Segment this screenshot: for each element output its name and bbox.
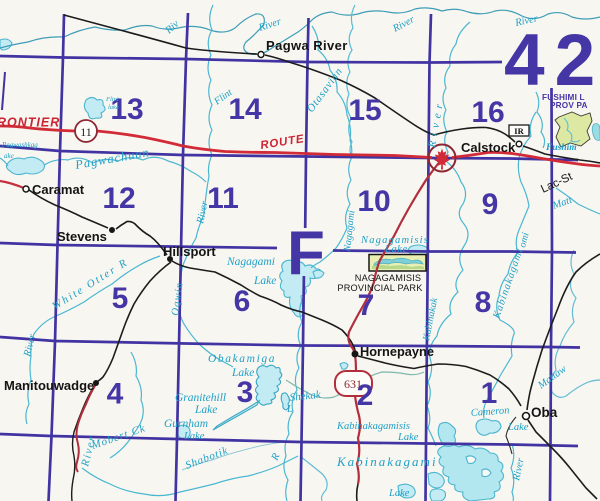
- svg-text:1: 1: [481, 377, 498, 410]
- svg-text:9: 9: [482, 188, 499, 221]
- svg-text:10: 10: [357, 185, 390, 218]
- svg-text:Gurnham: Gurnham: [164, 418, 208, 430]
- svg-text:NAGAGAMISIS: NAGAGAMISIS: [355, 273, 422, 283]
- svg-text:PROV PA: PROV PA: [550, 101, 588, 110]
- svg-text:Hornepayne: Hornepayne: [360, 344, 434, 359]
- svg-text:ake: ake: [4, 152, 14, 160]
- svg-text:Lake: Lake: [194, 404, 217, 416]
- svg-text:11: 11: [80, 125, 92, 139]
- svg-text:Caramat: Caramat: [32, 182, 85, 197]
- svg-text:Pagwashkag: Pagwashkag: [1, 141, 38, 149]
- svg-text:L: L: [286, 404, 293, 415]
- svg-text:6: 6: [234, 285, 251, 318]
- svg-text:3: 3: [237, 376, 254, 409]
- svg-text:4: 4: [107, 378, 124, 411]
- svg-text:11: 11: [207, 182, 239, 215]
- svg-text:Lake: Lake: [384, 244, 408, 255]
- svg-text:2: 2: [357, 379, 374, 412]
- svg-text:Manitouwadge: Manitouwadge: [4, 378, 94, 393]
- svg-text:Obakamiga: Obakamiga: [208, 353, 276, 365]
- svg-text:Fushim: Fushim: [545, 143, 577, 153]
- svg-text:IR: IR: [514, 126, 524, 136]
- svg-text:lake: lake: [108, 104, 119, 111]
- svg-text:RONTIER: RONTIER: [0, 116, 60, 130]
- svg-text:PROVINCIAL PARK: PROVINCIAL PARK: [337, 283, 423, 293]
- svg-text:Stevens: Stevens: [57, 229, 107, 244]
- svg-text:Kabinakagami: Kabinakagami: [336, 454, 438, 469]
- svg-text:42: 42: [504, 20, 600, 101]
- svg-text:Lake: Lake: [253, 275, 276, 287]
- svg-text:12: 12: [102, 182, 135, 215]
- svg-text:Lake: Lake: [507, 422, 529, 433]
- svg-text:16: 16: [471, 96, 504, 129]
- svg-text:Lake: Lake: [388, 488, 410, 499]
- svg-text:Flint: Flint: [105, 96, 119, 103]
- svg-text:Nagagami: Nagagami: [226, 256, 275, 268]
- svg-text:Hillsport: Hillsport: [163, 244, 216, 259]
- svg-text:Lake: Lake: [231, 367, 254, 379]
- svg-text:7: 7: [358, 289, 375, 322]
- svg-text:8: 8: [475, 286, 492, 319]
- svg-text:14: 14: [228, 93, 262, 126]
- svg-text:Calstock: Calstock: [461, 140, 516, 155]
- svg-text:15: 15: [348, 94, 381, 127]
- svg-text:Granitehill: Granitehill: [175, 392, 226, 404]
- svg-text:Kabinakagamisis: Kabinakagamisis: [336, 421, 410, 432]
- svg-text:Oba: Oba: [531, 405, 558, 420]
- svg-text:F: F: [287, 219, 325, 288]
- svg-text:5: 5: [112, 282, 129, 315]
- svg-text:Lake: Lake: [397, 432, 419, 443]
- svg-text:Lake: Lake: [183, 431, 205, 442]
- svg-text:Pagwa River: Pagwa River: [266, 38, 348, 53]
